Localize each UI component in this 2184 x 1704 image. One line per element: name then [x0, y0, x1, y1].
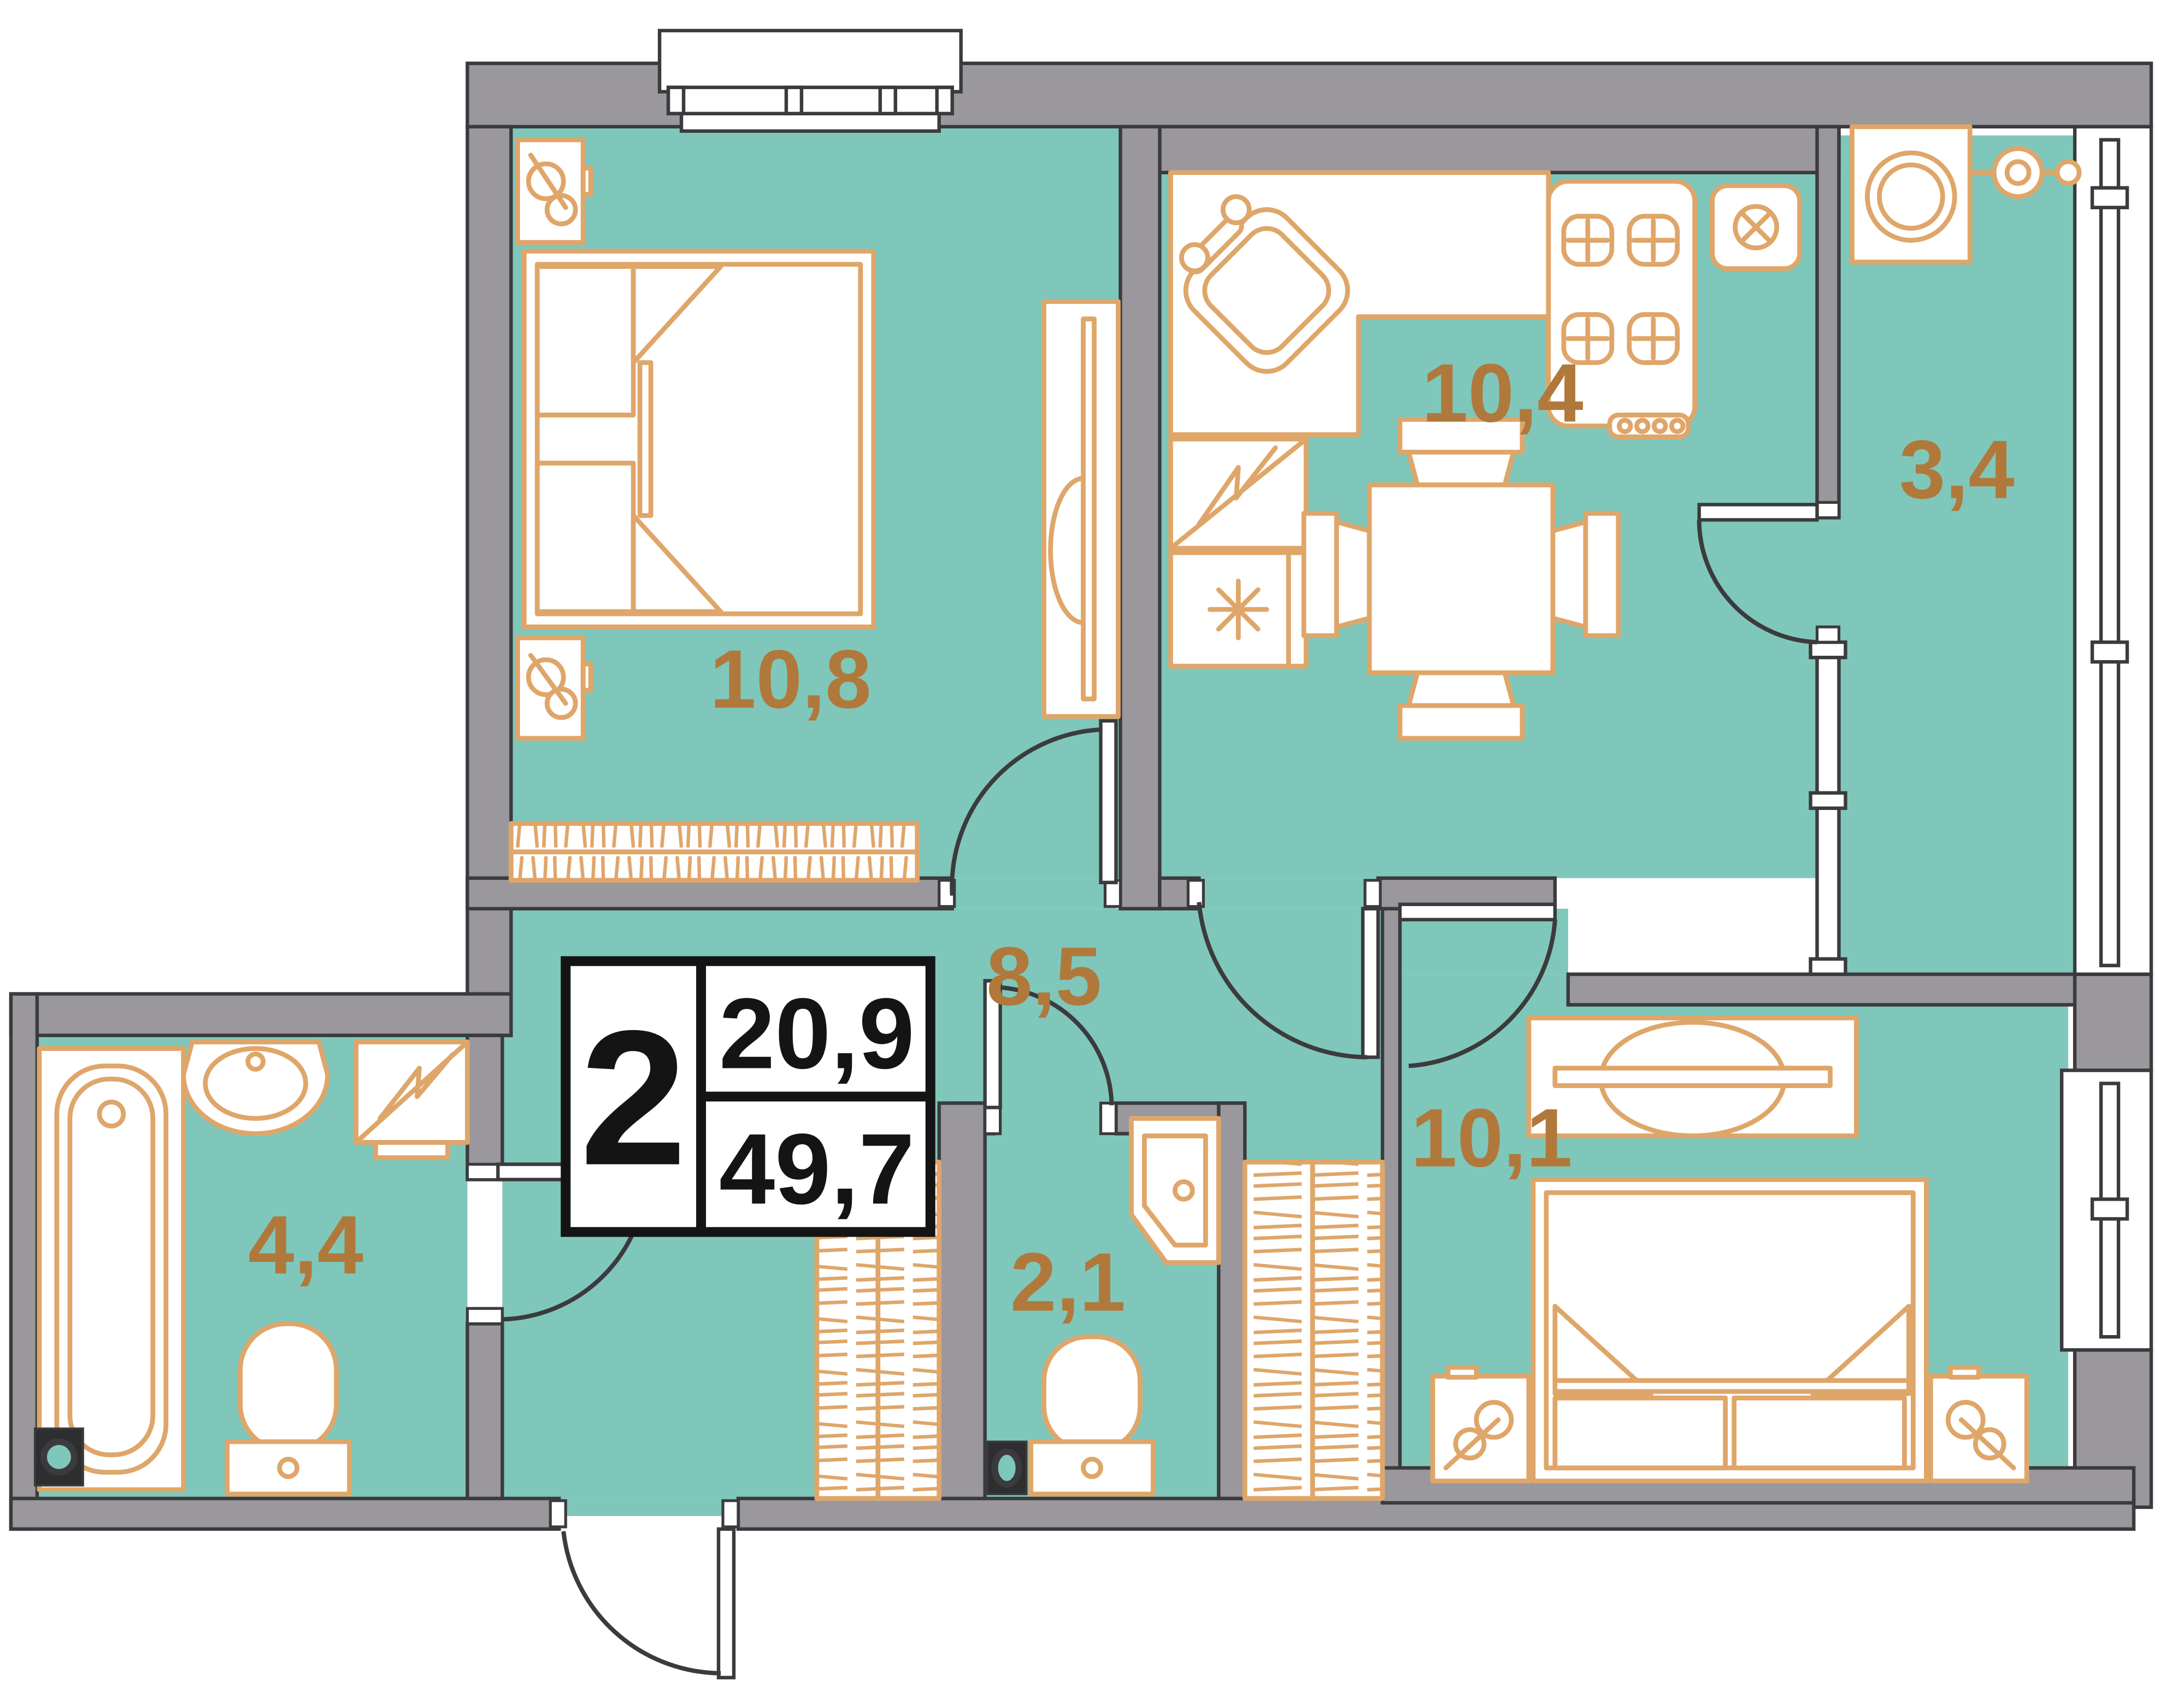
total-area: 49,7: [719, 1113, 915, 1225]
wall-bathroom-right-a: [467, 1036, 502, 1180]
label-bedroom1: 10,8: [710, 633, 872, 726]
wall-bedroom2-west: [1382, 909, 1400, 1507]
floor-door-gap-wc: [994, 1103, 1116, 1133]
wall-light-icon: [2007, 162, 2029, 184]
chair-seat: [1337, 522, 1369, 627]
window-mullion: [2092, 188, 2127, 208]
pillow: [1734, 1398, 1905, 1468]
door-jamb: [1817, 502, 1839, 518]
floor-door-gap-bedroom1: [952, 878, 1116, 909]
label-bedroom2: 10,1: [1411, 1092, 1573, 1184]
chair-back: [1400, 706, 1522, 738]
window-mullion: [1811, 642, 1846, 657]
pillow: [1555, 1398, 1726, 1468]
vent-circle: [44, 1442, 74, 1472]
wall-bottom-a: [11, 1499, 559, 1529]
bathtub-drain: [99, 1102, 123, 1126]
entrance-door-leaf: [719, 1529, 734, 1678]
washer-base: [375, 1142, 448, 1157]
window-balcony-slab: [660, 31, 961, 92]
dining-table-icon: [1369, 485, 1553, 673]
toilet-bowl: [1044, 1337, 1140, 1450]
mattress-line: [640, 363, 651, 516]
bedroom2-door-leaf: [1400, 904, 1555, 920]
dresser-shelf: [1555, 1068, 1830, 1086]
sink-drain: [1175, 1182, 1192, 1199]
chair-back: [1586, 513, 1618, 636]
pillow: [537, 267, 633, 415]
door-jamb: [1365, 880, 1380, 907]
entrance-door-arc: [563, 1531, 721, 1673]
faucet-knob: [1223, 197, 1249, 223]
wall-partition-bedroom1-kitchen: [1120, 127, 1159, 909]
window-mullion: [1811, 793, 1846, 808]
window-mullion: [2092, 642, 2127, 662]
loggia-window-frame: [2101, 140, 2118, 966]
toilet-button: [1084, 1459, 1101, 1477]
floor-door-gap-loggia: [1817, 518, 1839, 642]
wall-wc-left: [939, 1103, 985, 1498]
wall-bedroom2-north: [1568, 974, 2075, 1005]
bedroom1-door-leaf: [1100, 721, 1116, 883]
living-area: 20,9: [719, 978, 915, 1090]
door-jamb: [467, 1308, 502, 1324]
sink-drain: [248, 1054, 263, 1070]
toilet-button: [280, 1459, 297, 1477]
window-mullion: [880, 87, 896, 114]
nightstand-knob: [1950, 1367, 1979, 1377]
nightstand-knob: [583, 168, 591, 195]
wall-bathroom-left: [11, 994, 37, 1529]
window-mullion: [2092, 1199, 2127, 1219]
chair-seat: [1553, 522, 1586, 627]
floorplan-stage: 10,8 10,4 3,4 8,5 4,4 2,1 10,1 2 20,9 49…: [0, 0, 2184, 1704]
window-mullion: [1811, 959, 1846, 974]
nightstand-knob: [583, 664, 591, 690]
wall-right-a: [2075, 974, 2151, 1071]
floor-entrance-gap: [559, 1499, 738, 1516]
wall-bathroom-right-b: [467, 1324, 502, 1499]
door-jamb: [1817, 627, 1839, 642]
label-kitchen: 10,4: [1422, 347, 1583, 439]
floorplan-drawing: 10,8 10,4 3,4 8,5 4,4 2,1 10,1 2 20,9 49…: [0, 0, 2184, 1704]
wall-kitchen-loggia: [1817, 127, 1839, 518]
wall-bathroom-top: [11, 994, 511, 1036]
bedroom1-window-frame: [668, 87, 952, 114]
label-loggia: 3,4: [1899, 424, 2015, 516]
snowflake-icon: [1210, 581, 1267, 638]
window-mullion: [786, 87, 802, 114]
cabinet-door-line: [1084, 319, 1094, 699]
pillow: [537, 463, 633, 612]
door-jamb: [1100, 1103, 1116, 1133]
chair-back: [1304, 513, 1337, 636]
wall-light-dot: [2057, 162, 2079, 184]
window-mullion: [668, 87, 684, 114]
chair-seat: [1409, 673, 1514, 706]
label-bathroom: 4,4: [248, 1199, 363, 1291]
loggia-door-leaf: [1699, 504, 1817, 520]
kitchen-door-leaf: [1363, 909, 1378, 1057]
door-jamb: [723, 1501, 738, 1527]
floor-door-gap-kitchen: [1199, 878, 1378, 909]
vent-circle: [995, 1452, 1019, 1484]
door-jamb: [550, 1501, 566, 1527]
chair-seat: [1409, 452, 1514, 485]
mattress-line: [1555, 1380, 1909, 1391]
wall-wc-right: [1218, 1103, 1245, 1498]
nightstand-knob: [1448, 1367, 1476, 1377]
label-hallway: 8,5: [986, 931, 1102, 1023]
faucet-knob: [1181, 245, 1208, 271]
label-wc: 2,1: [1010, 1236, 1126, 1329]
rooms-count: 2: [580, 990, 687, 1205]
info-box: 2 20,9 49,7: [566, 961, 930, 1232]
window-mullion: [937, 87, 952, 114]
toilet-bowl: [240, 1324, 337, 1450]
wall-kitchen-top: [1159, 127, 1839, 173]
